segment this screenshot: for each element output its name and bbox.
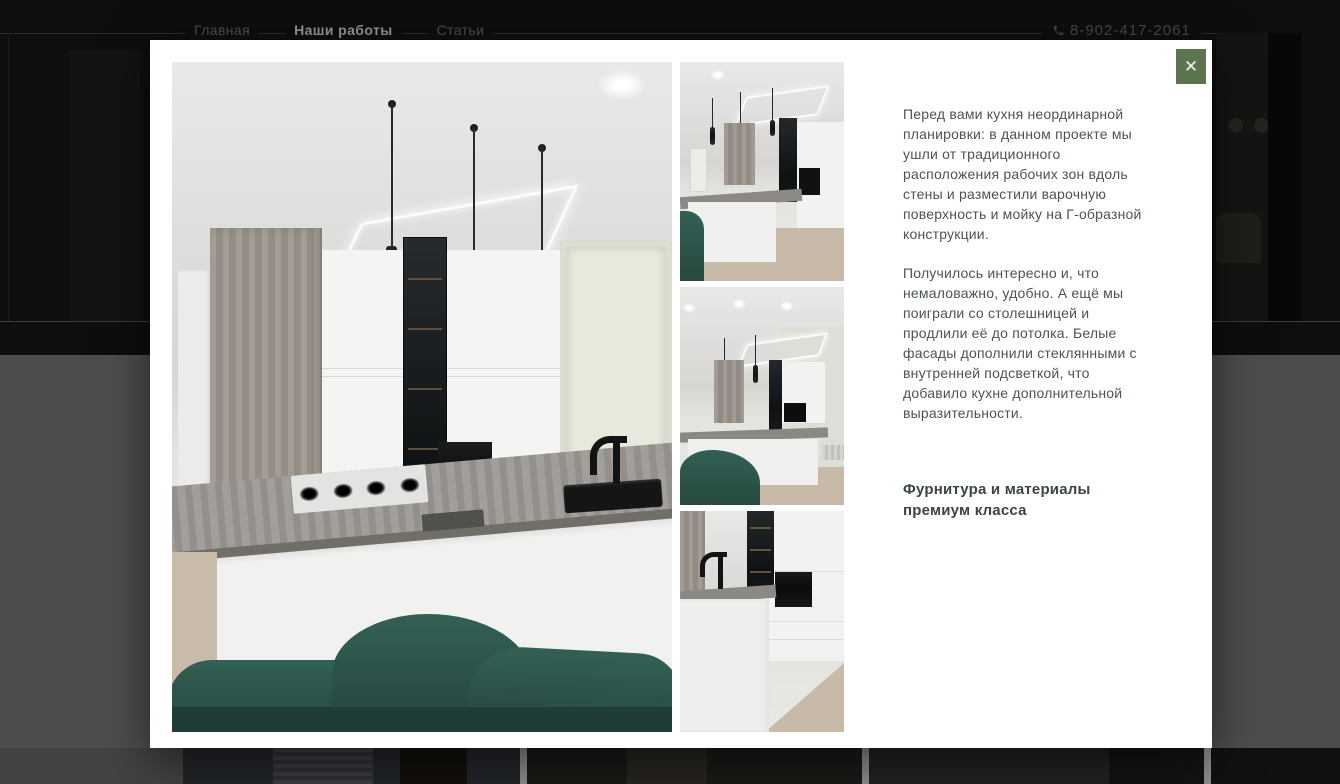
ceiling-spotlight <box>682 303 696 313</box>
nav-item-home[interactable]: Главная <box>185 20 259 40</box>
cabinet-seam <box>764 639 844 640</box>
card-gap <box>1204 748 1211 784</box>
project-card-thumb <box>869 748 1204 784</box>
gallery-thumbnail-2[interactable] <box>680 287 844 505</box>
sofa-corner <box>680 211 704 281</box>
card-gap <box>520 748 527 784</box>
faucet-stem <box>613 438 620 484</box>
project-card-thumb <box>1211 748 1340 784</box>
description-paragraph: Получилось интересно и, что немаловажно,… <box>903 263 1143 423</box>
description-paragraph: Перед вами кухня неординарной планировки… <box>903 104 1143 244</box>
dimmed-project-cards-row <box>0 748 1340 784</box>
ceiling-spotlight <box>780 301 794 311</box>
lit-shelf <box>750 571 771 573</box>
glass-display-cabinet <box>747 511 774 596</box>
gallery-main-photo[interactable] <box>172 62 672 732</box>
pendant-cord <box>391 104 393 246</box>
dark-shape <box>1109 748 1204 784</box>
lit-shelf <box>408 388 442 390</box>
project-card-thumb <box>527 748 862 784</box>
door <box>690 148 707 192</box>
nav-item-our-works[interactable]: Наши работы <box>285 20 401 40</box>
burner <box>298 485 319 502</box>
built-in-oven <box>775 572 812 607</box>
glass-display-cabinet <box>769 360 782 430</box>
outlet-shape <box>1228 118 1243 133</box>
hero-photo-right <box>1216 33 1340 322</box>
pendant-cord <box>772 88 773 120</box>
wood-column <box>714 360 744 423</box>
pendant-cord <box>473 128 475 262</box>
kettle-shape <box>1216 213 1261 263</box>
ceiling-spotlight <box>710 70 726 80</box>
lit-shelf <box>408 448 442 450</box>
lit-shelf <box>408 278 442 280</box>
description-heading: Фурнитура и материалы премиум класса <box>903 479 1143 521</box>
island-front <box>680 599 769 732</box>
project-modal: Перед вами кухня неординарной планировки… <box>150 40 1212 748</box>
phone-number: 8-902-417-2061 <box>1070 22 1191 39</box>
dark-wall-shape <box>1302 33 1340 322</box>
cabinet-seam <box>764 621 844 622</box>
main-nav: Главная Наши работы Статьи <box>185 20 493 40</box>
pendant-light <box>710 127 715 145</box>
radiator <box>822 445 844 460</box>
lit-shelf <box>750 549 771 551</box>
burner <box>332 482 353 499</box>
faucet-stem <box>718 557 723 589</box>
burner <box>399 476 420 493</box>
card-gap <box>862 748 869 784</box>
phone-icon <box>1052 24 1065 37</box>
sofa-base <box>172 707 672 732</box>
wood-floor <box>765 651 844 732</box>
lit-shelf <box>408 328 442 330</box>
vases-shape <box>400 748 467 784</box>
lit-shelf <box>750 527 771 529</box>
blinds-shape <box>273 748 373 784</box>
ceiling-spotlight <box>732 299 746 309</box>
wood-column <box>724 123 755 185</box>
ceiling-spotlight <box>597 70 647 100</box>
project-card-thumb <box>183 748 520 784</box>
panel-shape <box>627 748 707 784</box>
dark-column-shape <box>1268 33 1302 322</box>
close-button[interactable]: ✕ <box>1176 49 1206 84</box>
hero-edge-line <box>8 33 9 322</box>
phone-link[interactable]: 8-902-417-2061 <box>1042 20 1201 41</box>
pendant-cord <box>712 98 713 128</box>
project-description: Перед вами кухня неординарной планировки… <box>903 104 1143 521</box>
nav-item-articles[interactable]: Статьи <box>428 20 494 40</box>
wood-column <box>680 511 705 596</box>
tv-screen <box>784 403 806 422</box>
faucet <box>590 436 627 475</box>
outlet-shape <box>1254 118 1269 133</box>
pendant-light <box>770 120 775 136</box>
gallery-thumbnail-1[interactable] <box>680 62 844 281</box>
hero-photo-left <box>70 50 140 322</box>
gallery-thumbnail-3[interactable] <box>680 511 844 732</box>
pendant-cord <box>755 335 756 365</box>
built-in-oven <box>799 168 820 195</box>
close-icon: ✕ <box>1184 57 1198 76</box>
pendant-light <box>753 365 758 383</box>
burner <box>366 479 387 496</box>
